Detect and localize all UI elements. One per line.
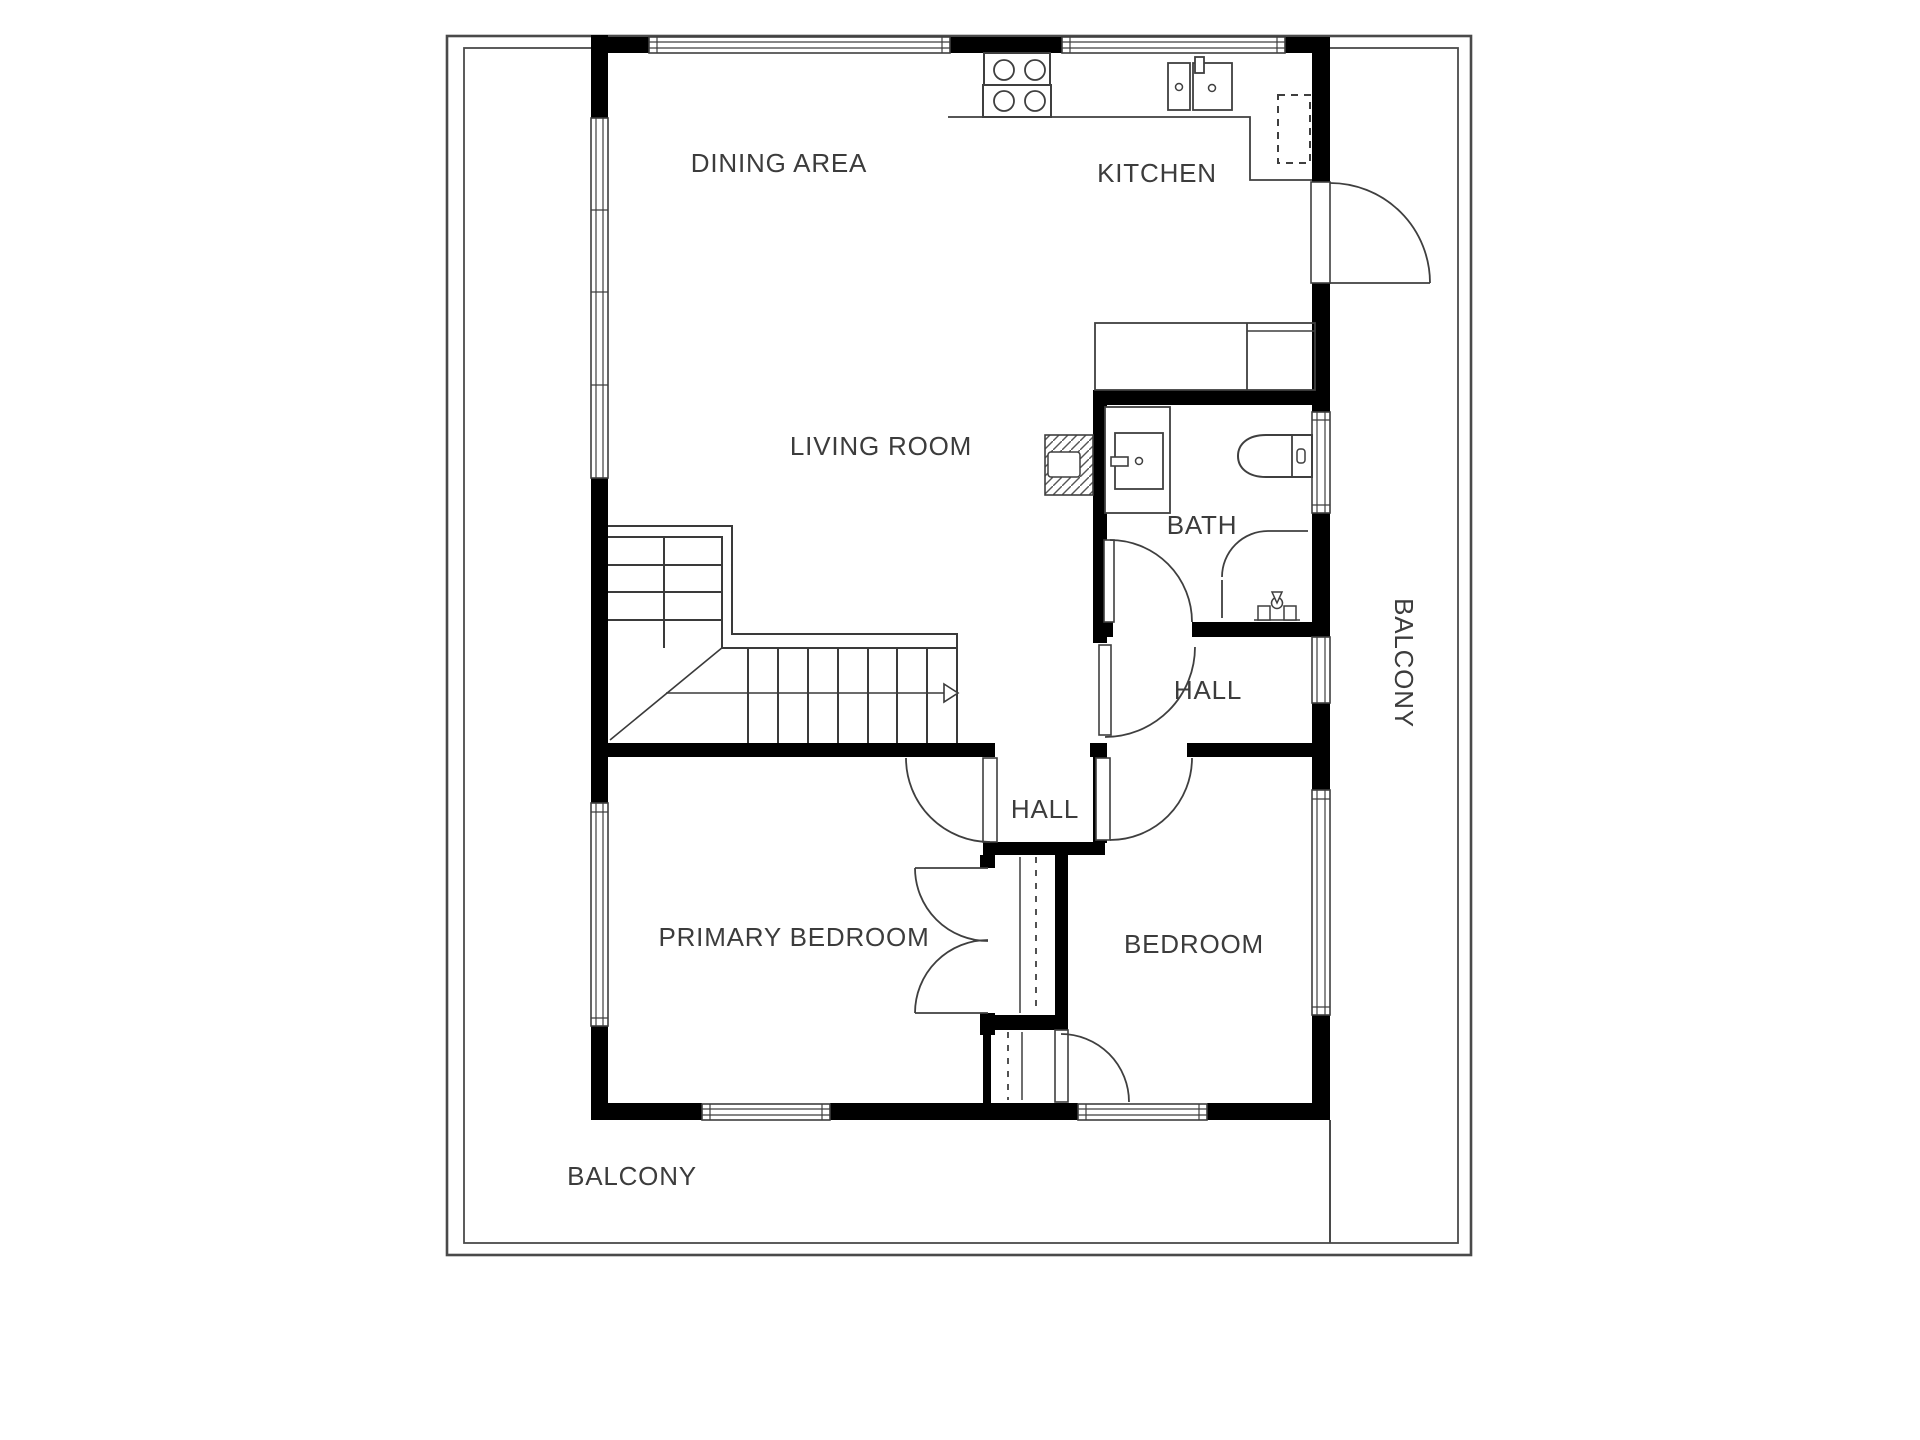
room-label-primary-bedroom: PRIMARY BEDROOM xyxy=(658,922,929,952)
closet-lines xyxy=(1008,857,1036,1100)
kitchen-fixtures xyxy=(948,53,1315,390)
shower-icon xyxy=(1222,531,1308,618)
window-bath-icon xyxy=(1312,412,1330,513)
door-bedroom-lower-icon xyxy=(1055,1030,1129,1102)
room-label-bedroom: BEDROOM xyxy=(1124,929,1264,959)
room-label-hall-upper: HALL xyxy=(1174,675,1242,705)
window-dining-top-icon xyxy=(649,37,950,53)
window-bedroom-bottom-icon xyxy=(1078,1104,1207,1120)
room-label-balcony-bottom: BALCONY xyxy=(567,1161,697,1191)
door-bedroom-icon xyxy=(1096,758,1192,840)
duct-shaft-icon xyxy=(1045,435,1093,495)
window-primary-bedroom-bottom-icon xyxy=(702,1104,830,1120)
room-label-kitchen: KITCHEN xyxy=(1097,158,1217,188)
floor-plan: DINING AREA KITCHEN LIVING ROOM BATH HAL… xyxy=(0,0,1920,1440)
room-label-balcony-right: BALCONY xyxy=(1389,598,1419,728)
doors xyxy=(906,182,1430,1102)
floor-plan-page: DINING AREA KITCHEN LIVING ROOM BATH HAL… xyxy=(0,0,1920,1440)
door-bath-icon xyxy=(1104,540,1192,622)
refrigerator-icon xyxy=(1278,95,1310,163)
window-primary-bedroom-left-icon xyxy=(591,803,608,1026)
room-label-bath: BATH xyxy=(1167,510,1238,540)
kitchen-sink-icon xyxy=(1168,57,1232,110)
window-kitchen-top-icon xyxy=(1062,37,1285,53)
room-label-living-room: LIVING ROOM xyxy=(790,431,972,461)
faucet-icon xyxy=(1254,592,1300,620)
door-kitchen-balcony-icon xyxy=(1311,182,1430,283)
bath-sink-icon xyxy=(1105,407,1170,513)
window-hall-icon xyxy=(1312,637,1330,703)
stove-icon xyxy=(983,53,1051,117)
window-living-left-icon xyxy=(591,118,608,478)
door-hall-lower-icon xyxy=(906,758,997,842)
staircase-icon xyxy=(608,526,958,743)
room-label-dining-area: DINING AREA xyxy=(691,148,867,178)
toilet-icon xyxy=(1238,435,1312,477)
kitchen-cabinets-icon xyxy=(1095,323,1315,390)
room-label-hall-lower: HALL xyxy=(1011,794,1079,824)
window-bedroom-right-icon xyxy=(1312,790,1330,1015)
